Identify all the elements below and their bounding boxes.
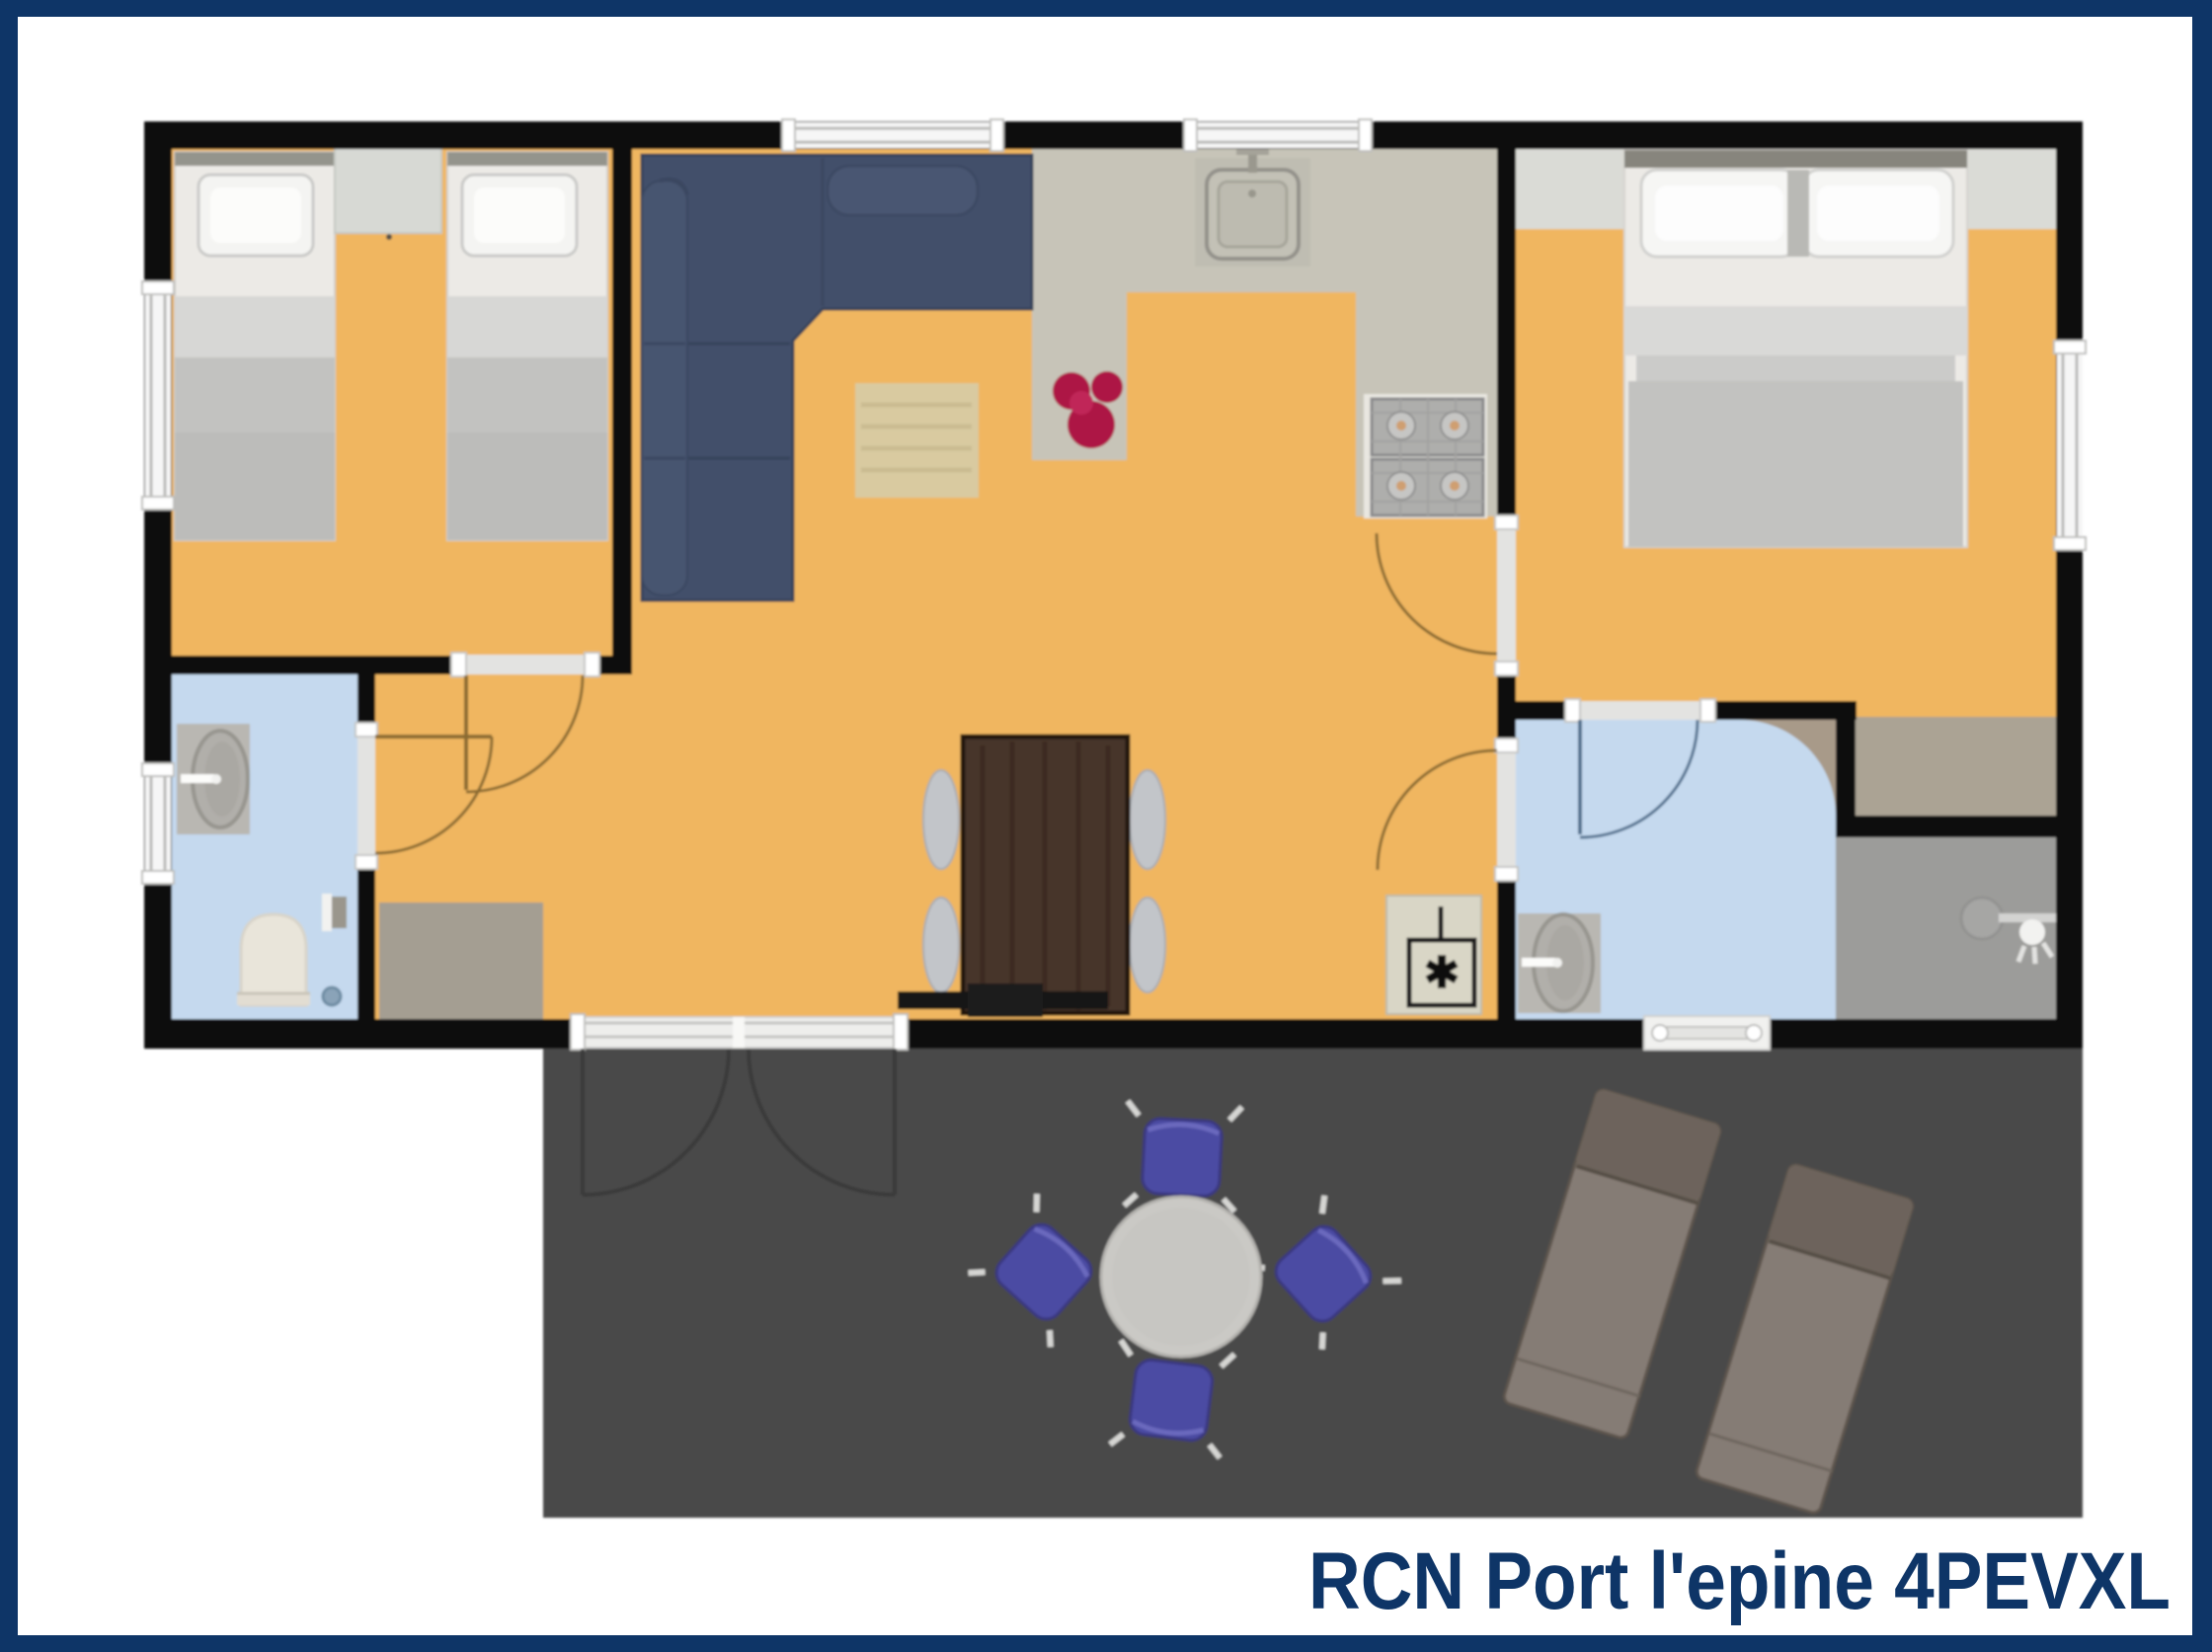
svg-text:RCN Port l'epine 4PEVXL: RCN Port l'epine 4PEVXL: [1308, 1536, 2171, 1626]
svg-text:✱: ✱: [1424, 949, 1461, 997]
